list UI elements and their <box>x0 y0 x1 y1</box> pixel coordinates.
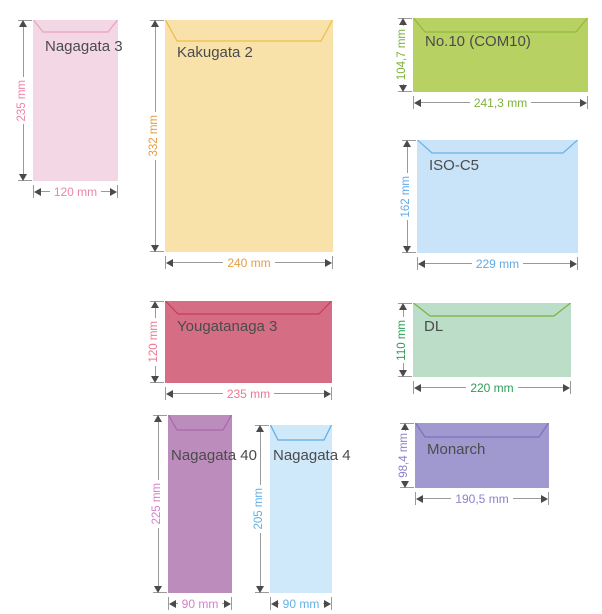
arrow-down-icon <box>401 481 409 488</box>
dimension-line <box>513 498 541 499</box>
envelope-size-diagram: Nagagata 3235 mm120 mmKakugata 2332 mm24… <box>0 0 602 614</box>
envelope-flap-icon <box>415 423 549 439</box>
extension-bar-right <box>548 492 549 505</box>
arrow-up-icon <box>401 423 409 430</box>
envelope-name: Monarch <box>427 441 485 459</box>
width-dimension: 190,5 mm <box>415 492 549 505</box>
height-dimension: 98,4 mm <box>398 423 412 488</box>
height-value: 98,4 mm <box>399 433 411 478</box>
envelope-monarch: Monarch98,4 mm190,5 mm <box>0 0 602 614</box>
arrow-right-icon <box>541 495 548 503</box>
dimension-line <box>423 498 451 499</box>
envelope-body: Monarch <box>415 423 549 488</box>
width-value: 190,5 mm <box>455 493 508 505</box>
arrow-left-icon <box>416 495 423 503</box>
